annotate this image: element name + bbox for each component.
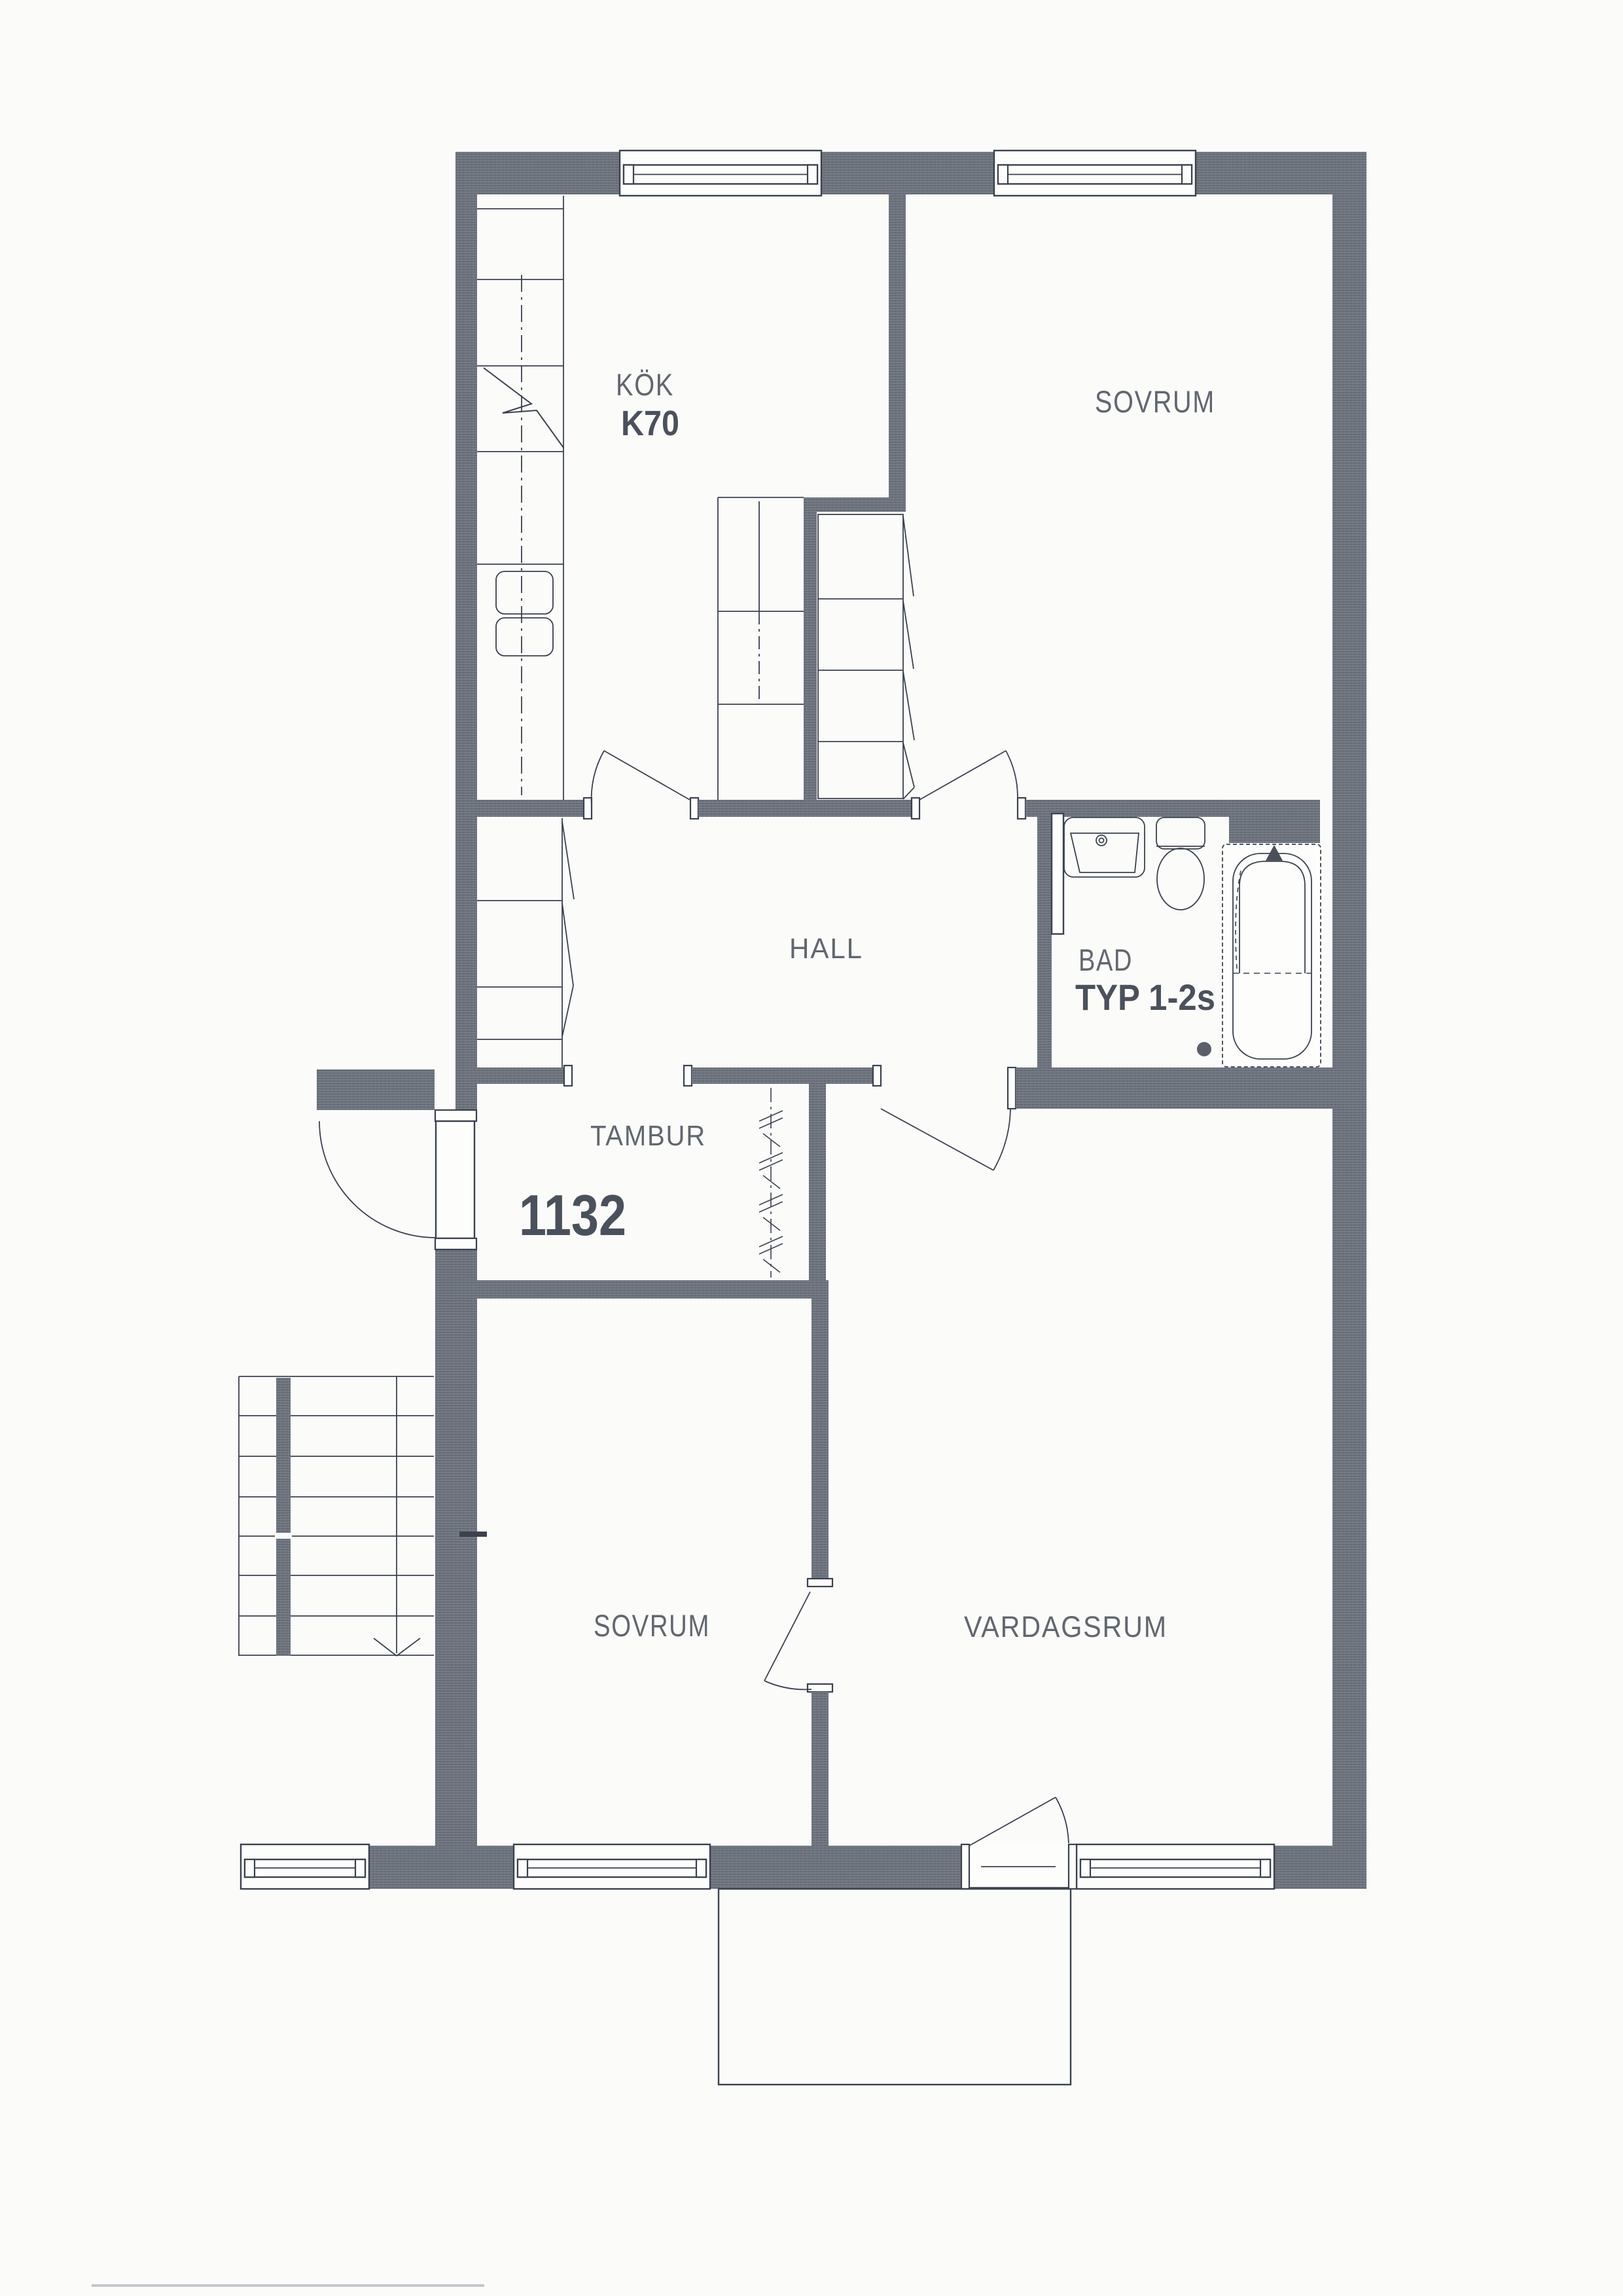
svg-text:1132: 1132 [519,1183,626,1247]
svg-text:TYP 1-2s: TYP 1-2s [1075,977,1215,1018]
svg-text:HALL: HALL [789,933,863,965]
svg-text:TAMBUR: TAMBUR [590,1120,706,1152]
svg-text:KÖK: KÖK [616,367,674,402]
svg-text:VARDAGSRUM: VARDAGSRUM [964,1610,1168,1643]
svg-text:BAD: BAD [1079,942,1133,977]
svg-text:SOVRUM: SOVRUM [1095,384,1215,419]
svg-text:K70: K70 [621,404,679,443]
svg-text:SOVRUM: SOVRUM [594,1608,710,1643]
